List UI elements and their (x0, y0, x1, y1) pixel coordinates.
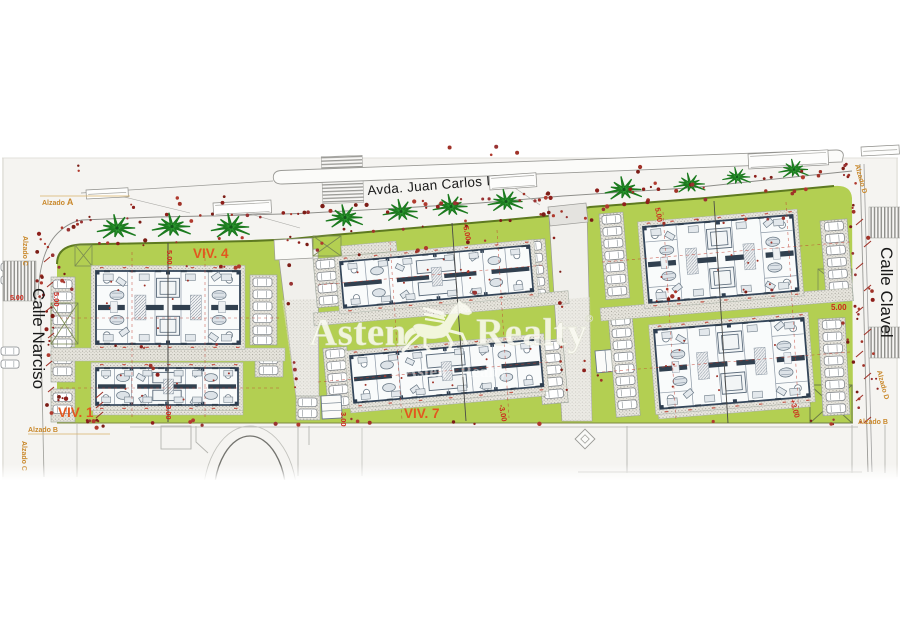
svg-text:Asten: Asten (309, 311, 407, 354)
svg-text:Realty: Realty (460, 362, 508, 381)
svg-text:Realty: Realty (476, 311, 587, 354)
svg-text:3.00: 3.00 (339, 412, 348, 427)
svg-text:®: ® (585, 313, 593, 325)
svg-text:Alzado B: Alzado B (28, 427, 58, 434)
svg-text:VIV. 7: VIV. 7 (404, 406, 440, 421)
svg-text:5.00: 5.00 (10, 295, 24, 302)
svg-text:Asten: Asten (405, 362, 447, 381)
svg-text:5.00: 5.00 (52, 292, 61, 307)
svg-text:Alzado B: Alzado B (858, 419, 888, 426)
svg-text:5.00: 5.00 (831, 303, 847, 312)
svg-text:5.00: 5.00 (165, 250, 174, 265)
svg-text:Calle Clavel: Calle Clavel (877, 247, 896, 338)
svg-text:Alzado C: Alzado C (21, 236, 28, 266)
svg-text:VIV. 1: VIV. 1 (58, 405, 94, 420)
svg-text:3.00: 3.00 (164, 405, 173, 420)
svg-text:VIV. 4: VIV. 4 (193, 246, 229, 261)
svg-text:Calle Narciso: Calle Narciso (29, 288, 48, 389)
